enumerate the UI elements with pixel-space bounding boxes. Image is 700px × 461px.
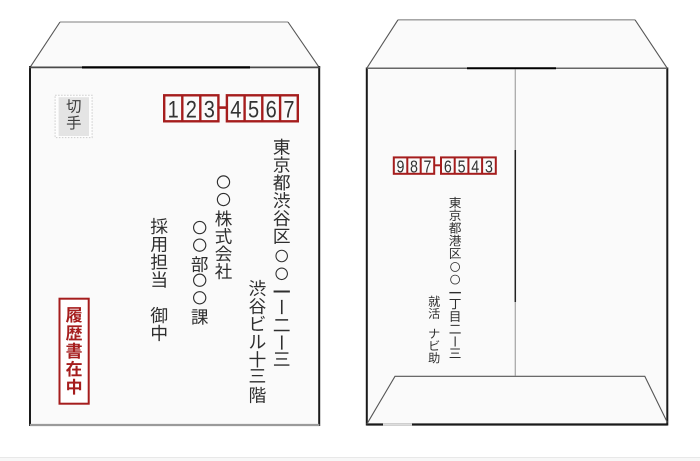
svg-text:7: 7 xyxy=(283,96,294,123)
svg-text:4: 4 xyxy=(471,158,479,177)
svg-text:8: 8 xyxy=(410,158,418,177)
svg-text:6: 6 xyxy=(266,96,277,123)
svg-text:5: 5 xyxy=(458,158,466,177)
svg-text:3: 3 xyxy=(204,96,215,123)
svg-text:7: 7 xyxy=(424,158,432,177)
svg-text:3: 3 xyxy=(485,158,493,177)
svg-text:5: 5 xyxy=(248,96,259,123)
svg-text:9: 9 xyxy=(397,158,405,177)
svg-text:1: 1 xyxy=(168,96,179,123)
svg-text:4: 4 xyxy=(230,96,241,123)
svg-text:2: 2 xyxy=(186,96,197,123)
svg-text:6: 6 xyxy=(444,158,452,177)
